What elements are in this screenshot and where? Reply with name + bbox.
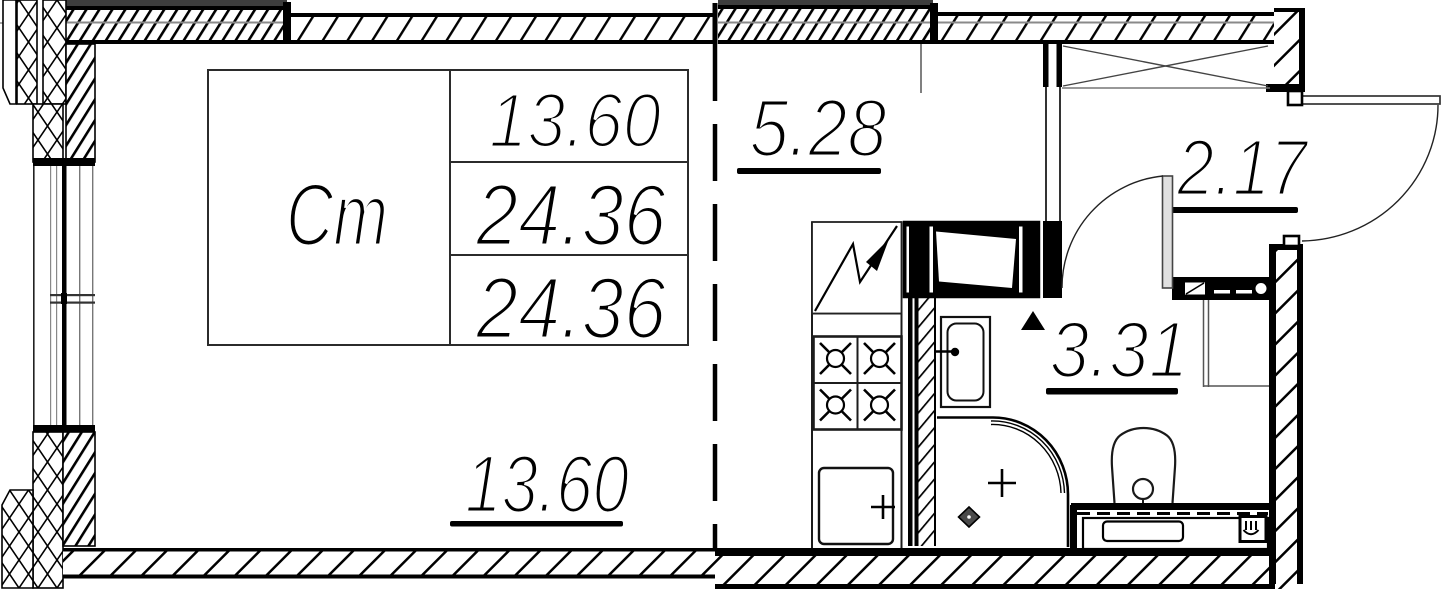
svg-text:24.36: 24.36 (475, 260, 666, 357)
svg-text:5.28: 5.28 (750, 83, 887, 174)
svg-text:Ст: Ст (286, 165, 388, 264)
svg-text:3.31: 3.31 (1050, 305, 1189, 394)
svg-text:13.60: 13.60 (489, 78, 661, 164)
svg-text:13.60: 13.60 (465, 439, 629, 530)
svg-text:24.36: 24.36 (475, 167, 666, 264)
svg-text:2.17: 2.17 (1176, 123, 1309, 212)
